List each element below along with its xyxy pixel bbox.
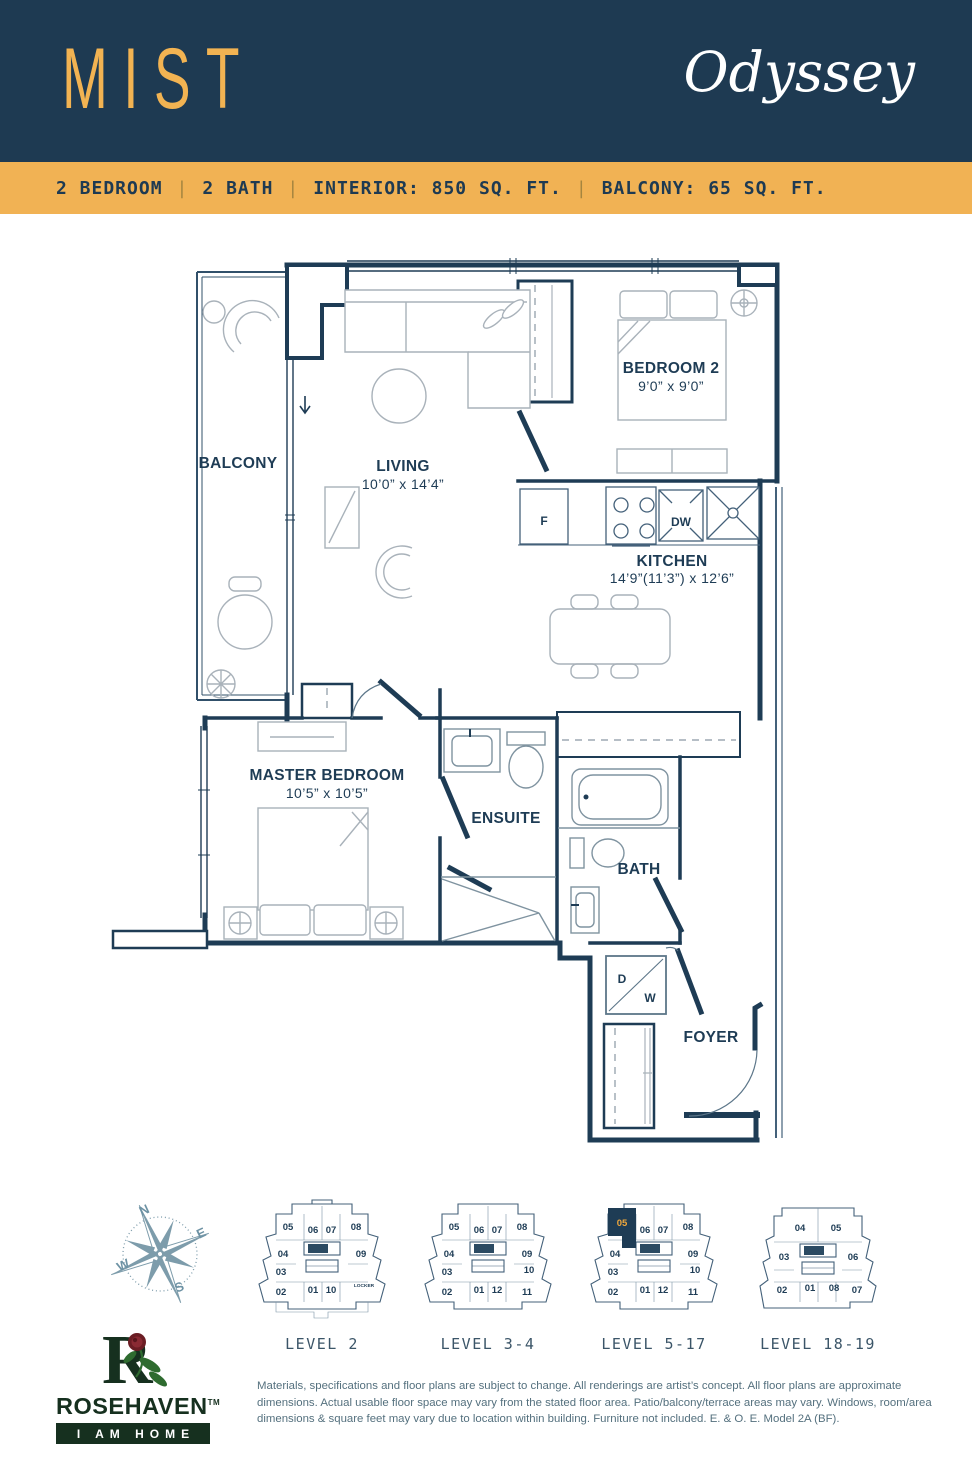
keyplan-unit: 09 <box>356 1249 367 1260</box>
keyplan-unit: 07 <box>852 1285 863 1296</box>
spec-divider: | <box>177 178 189 199</box>
kitchen-appliances <box>518 487 760 546</box>
balcony-walls <box>197 272 287 700</box>
rosehaven-logo: R ROSEHAVENTM I AM HOME <box>56 1331 210 1444</box>
room-label-bedroom2: BEDROOM 2 <box>623 360 720 377</box>
specs-banner: 2 BEDROOM | 2 BATH | INTERIOR: 850 SQ. F… <box>0 162 972 214</box>
keyplan-unit: 02 <box>777 1285 788 1296</box>
room-label-kitchen: KITCHEN <box>637 553 708 570</box>
fridge-label: F <box>540 514 547 528</box>
spec-interior: INTERIOR: 850 SQ. FT. <box>313 178 562 199</box>
keyplan-unit: 01 <box>474 1285 485 1296</box>
spec-bedrooms: 2 BEDROOM <box>56 178 163 199</box>
keyplan-unit: 11 <box>688 1287 699 1298</box>
keyplan-unit: 09 <box>688 1249 699 1260</box>
room-dims-living: 10’0” x 14’4” <box>362 476 444 492</box>
keyplan-unit: 08 <box>517 1222 528 1233</box>
keyplan-unit: 11 <box>522 1287 533 1298</box>
keyplan-unit: 08 <box>683 1222 694 1233</box>
keyplan-label: LEVEL 3-4 <box>418 1335 558 1353</box>
keyplan-level-18-19: 04 05 03 06 02 01 08 07 LEVEL 18-19 <box>748 1197 888 1353</box>
brand-logo: Odyssey <box>684 40 915 104</box>
room-label-master: MASTER BEDROOM <box>250 767 405 784</box>
keyplan-unit: 07 <box>658 1225 669 1236</box>
room-label-living: LIVING <box>376 458 429 475</box>
keyplan-level-2: 05 06 07 08 04 09 03 02 01 10 LOCKER LEV… <box>252 1197 392 1353</box>
room-label-balcony: BALCONY <box>199 455 278 472</box>
keyplan-unit: 03 <box>779 1252 790 1263</box>
entry-arrow-icon <box>300 396 310 413</box>
keyplan-unit: 02 <box>276 1287 287 1298</box>
keyplan-unit: 01 <box>308 1285 319 1296</box>
room-label-bath: BATH <box>617 861 660 878</box>
keyplan-unit: 10 <box>690 1265 701 1276</box>
keyplan-unit: LOCKER <box>354 1283 375 1289</box>
dryer-label: D <box>618 972 627 986</box>
keyplan-unit: 12 <box>492 1285 503 1296</box>
keyplan-unit: 07 <box>326 1225 337 1236</box>
keyplan-unit-highlighted: 05 <box>617 1218 628 1229</box>
spec-baths: 2 BATH <box>202 178 273 199</box>
keyplan-unit: 06 <box>474 1225 485 1236</box>
room-label-ensuite: ENSUITE <box>471 810 540 827</box>
keyplan-unit: 09 <box>522 1249 533 1260</box>
keyplan-unit: 03 <box>608 1267 619 1278</box>
room-dims-master: 10’5” x 10’5” <box>286 785 368 801</box>
keyplan-unit: 03 <box>442 1267 453 1278</box>
compass-south: S <box>172 1278 186 1295</box>
corridor-wall <box>776 487 782 1138</box>
keyplan-label: LEVEL 5-17 <box>584 1335 724 1353</box>
keyplan-unit: 06 <box>848 1252 859 1263</box>
keyplan-unit: 02 <box>442 1287 453 1298</box>
floorplan-drawing: BALCONY LIVING 10’0” x 14’4” BEDROOM 2 9… <box>0 222 972 1152</box>
logo-name-text: ROSEHAVEN <box>56 1393 208 1419</box>
room-dims-kitchen: 14’9”(11’3”) x 12’6” <box>610 570 734 586</box>
keyplan-unit: 05 <box>283 1222 294 1233</box>
unit-title: MIST <box>62 30 255 129</box>
keyplan-level-5-17: 05 06 07 08 04 09 03 10 02 01 12 11 LEVE… <box>584 1197 724 1353</box>
spec-balcony: BALCONY: 65 SQ. FT. <box>602 178 827 199</box>
room-label-foyer: FOYER <box>684 1029 739 1046</box>
keyplan-unit: 03 <box>276 1267 287 1278</box>
header: MIST Odyssey <box>0 0 972 162</box>
compass-rose: N E S W <box>98 1192 222 1316</box>
keyplan-unit: 08 <box>829 1283 840 1294</box>
floorplan-sheet: MIST Odyssey 2 BEDROOM | 2 BATH | INTERI… <box>0 0 972 1458</box>
keyplan-unit: 08 <box>351 1222 362 1233</box>
compass-north: N <box>137 1201 152 1219</box>
keyplan-unit: 04 <box>444 1249 455 1260</box>
logo-tm: TM <box>208 1398 221 1407</box>
rose-icon <box>120 1331 176 1395</box>
dishwasher-label: DW <box>671 515 692 529</box>
keyplan-unit: 04 <box>610 1249 621 1260</box>
disclaimer-text: Materials, specifications and floor plan… <box>257 1378 954 1428</box>
keyplan-unit: 05 <box>449 1222 460 1233</box>
logo-tagline: I AM HOME <box>56 1423 210 1444</box>
door-swings <box>352 684 757 1116</box>
keyplan-unit: 06 <box>640 1225 651 1236</box>
spec-divider: | <box>287 178 299 199</box>
room-dims-bedroom2: 9’0” x 9’0” <box>638 378 704 394</box>
keyplan-unit: 12 <box>658 1285 669 1296</box>
keyplan-unit: 02 <box>608 1287 619 1298</box>
keyplan-level-3-4: 05 06 07 08 04 09 03 10 02 01 12 11 LEVE… <box>418 1197 558 1353</box>
keyplan-unit: 04 <box>278 1249 289 1260</box>
keyplan-unit: 04 <box>795 1223 806 1234</box>
keyplan-unit: 06 <box>308 1225 319 1236</box>
washer-label: W <box>644 991 656 1005</box>
keyplan-unit: 10 <box>326 1285 337 1296</box>
logo-wordmark: ROSEHAVENTM <box>56 1393 210 1420</box>
keyplan-unit: 07 <box>492 1225 503 1236</box>
keyplan-unit: 05 <box>831 1223 842 1234</box>
spec-divider: | <box>576 178 588 199</box>
compass-west: W <box>114 1255 132 1274</box>
keyplan-unit: 10 <box>524 1265 535 1276</box>
keyplan-unit: 01 <box>805 1283 816 1294</box>
bath-fixtures <box>441 729 680 1128</box>
keyplan-label: LEVEL 2 <box>252 1335 392 1353</box>
keyplan-label: LEVEL 18-19 <box>748 1335 888 1353</box>
keyplan-unit: 01 <box>640 1285 651 1296</box>
